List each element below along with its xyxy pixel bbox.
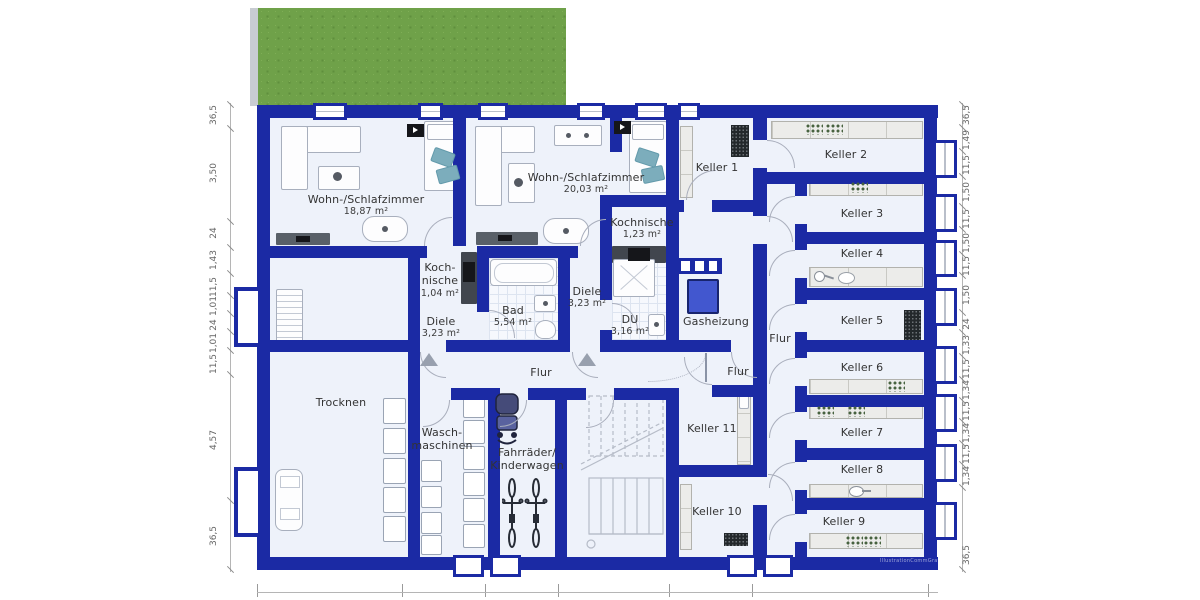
shape [497,432,503,438]
jar-cluster [817,406,834,417]
wall-segment [257,340,408,352]
room-label-wohnzimmer-2: Wohn-/Schlafzimmer 20,03 m² [528,171,645,196]
room-label-waschmaschinen: Wasch- maschinen [411,426,472,453]
shape: Kinderwagen [490,459,564,472]
washing-machine [421,535,442,555]
table-center [563,228,569,234]
window-top-3 [478,103,508,120]
shape [498,440,516,444]
room-label-keller-7: Keller 7 [841,426,884,439]
washing-machine [463,524,485,548]
shape [511,432,517,438]
wall-segment [477,246,489,312]
gas-boiler [687,279,719,314]
wall-segment [807,232,925,244]
room-label-flur-klein: Flur [727,365,748,378]
dimension-label: 11,5 [209,346,219,382]
shape [509,529,515,547]
shelf [680,484,692,550]
chair [514,178,523,187]
room-label-du: DU 3,16 m² [611,313,649,338]
shape [509,479,515,497]
shape [589,478,663,534]
meter-box [709,261,717,271]
window-right-k5 [933,288,957,326]
shape [581,428,663,470]
tv-triangle-icon [620,124,625,130]
room-label-keller-2: Keller 2 [825,148,868,161]
wall-segment [795,278,807,304]
dimension-line-bottom [257,592,938,593]
wall-segment [807,288,925,300]
jar-cluster [806,124,823,135]
wall-segment [666,465,753,477]
shape: 5,54 m² [494,317,532,329]
shelf [771,121,923,139]
window-top-6 [678,103,700,120]
bicycle-icon [502,477,550,551]
washing-machine [383,398,406,424]
washing-machine [463,498,485,522]
shape: 3,23 m² [422,328,460,340]
room-label-diele-2: Diele 3,23 m² [568,285,606,310]
wall-segment [795,386,807,412]
jar-cluster [851,182,868,193]
shape: 20,03 m² [528,184,645,196]
dimension-tick [752,584,753,597]
room-label-trocknen: Trocknen [316,396,366,409]
shape: 1,04 m² [421,288,459,300]
dimension-tick [402,584,403,597]
wall-segment [795,332,807,340]
table-center [382,226,388,232]
jar-cluster [888,381,905,392]
washing-machine [383,516,406,542]
cooktop [628,248,650,261]
shape [502,500,505,503]
window-right-k7 [933,394,957,432]
washing-machine [421,512,442,534]
watermark: IllustrationCommGrafik [880,558,945,564]
pegboard [724,533,748,546]
window-top-5 [635,103,667,120]
racket-handle [862,490,871,492]
shape: 1,23 m² [610,229,673,241]
shape: 3,16 m² [611,326,649,338]
shape [587,540,595,548]
racket-icon [849,486,864,497]
room-label-keller-4: Keller 4 [841,247,884,260]
window-top-2 [418,103,443,120]
sink-drain [543,301,548,306]
wall-segment [610,195,668,207]
shape: nische [421,274,459,287]
shape: Bad [494,304,532,317]
bay-window-left-1 [234,287,262,347]
room-label-kochnische-1: Koch- nische 1,04 m² [421,261,459,299]
room-label-keller-1: Keller 1 [696,161,739,174]
window-right-k4 [933,240,957,277]
toilet [535,320,556,339]
knob [584,133,589,138]
shape [526,500,529,503]
dresser [554,125,602,146]
entrance-arrow-1 [420,353,438,366]
shape: 3,23 m² [568,298,606,310]
wall-segment [408,246,420,557]
room-label-diele-1: Diele 3,23 m² [422,315,460,340]
wall-segment [753,505,767,557]
cabinet-inner [280,508,300,520]
room-label-flur-rechts: Flur [769,332,790,345]
shelf [276,289,303,344]
shape: maschinen [411,439,472,452]
dimension-label: 3,50 [209,155,219,191]
shape [533,479,539,497]
dimension-label: 36,5 [209,518,219,554]
wall-segment [753,168,767,216]
room-label-keller-8: Keller 8 [841,463,884,476]
room-label-keller-6: Keller 6 [841,361,884,374]
shape: Koch- [421,261,459,274]
shape: Wasch- [411,426,472,439]
wall-segment [795,490,807,514]
shape: Kochnische [610,216,673,229]
room-label-wohnzimmer-1: Wohn-/Schlafzimmer 18,87 m² [308,193,425,218]
bathtub-inner [494,263,554,283]
room-label-keller-5: Keller 5 [841,314,884,327]
stereo [498,235,512,241]
wall-segment [753,105,767,140]
wall-segment [712,385,757,397]
wall-segment [795,352,807,358]
pegboard [904,310,921,344]
window-right-k8 [933,444,957,482]
shape: Wohn-/Schlafzimmer [528,171,645,184]
room-label-flur-mitte: Flur [530,366,551,379]
knob [566,133,571,138]
shape: Diele [568,285,606,298]
wall-segment [795,172,807,196]
sofa [281,126,308,190]
stereo [296,236,310,242]
shape: DU [611,313,649,326]
dimension-label: 1,34 [962,458,972,494]
shape [581,422,663,464]
bed-headboard [632,124,664,140]
pegboard [731,125,749,157]
wall-segment [614,388,666,400]
dimension-tick [257,584,258,597]
wall-segment [257,557,938,570]
door-leaf [705,353,707,382]
wall-segment [257,246,427,258]
shape: Diele [422,315,460,328]
window-right-k9 [933,502,957,540]
meter-box [695,261,704,271]
shape [509,514,515,523]
room-label-keller-10: Keller 10 [692,505,742,518]
dimension-tick [558,584,559,597]
garden-border-strip [250,8,258,106]
jar-cluster [864,536,881,547]
dimension-tick [485,584,486,597]
shape [533,514,539,523]
entrance-arrow-2 [578,353,596,366]
light-well-3 [727,555,757,577]
dimension-tick [669,584,670,597]
wall-segment [666,200,684,212]
shape: Wohn-/Schlafzimmer [308,193,425,206]
cabinet-inner [280,476,300,488]
shelf [809,267,923,287]
washing-machine [421,486,442,508]
shape [502,479,547,547]
jar-cluster [826,124,843,135]
plate-icon [838,272,855,284]
jar-cluster [848,406,865,417]
wall-segment [600,340,731,352]
wall-segment [807,448,925,460]
grass-area [258,8,566,106]
dimension-label: 36,5 [209,97,219,133]
shape: Fahrräder/ [490,446,564,459]
shape [520,500,523,503]
washing-machine [383,428,406,454]
wall-segment [528,388,555,400]
shape [533,529,539,547]
wall-segment [567,388,586,400]
wall-segment [795,224,807,250]
wall-segment [753,244,767,340]
light-well-2 [490,555,521,577]
window-top-4 [577,103,605,120]
dimension-label: 4,57 [209,422,219,458]
tv-triangle-icon [413,127,418,133]
room-label-gasheizung: Gasheizung [683,315,749,328]
dimension-label: 36,5 [962,537,972,573]
wall-segment [807,498,925,510]
wall-segment [795,440,807,462]
light-well-4 [763,555,793,577]
cooktop [463,262,475,282]
wall-segment [446,340,570,352]
window-right-k3 [933,194,957,232]
washing-machine [383,458,406,484]
washing-machine [383,487,406,513]
dimension-tick [928,584,929,597]
washing-machine [421,460,442,482]
room-label-kochnische-2: Kochnische 1,23 m² [610,216,673,241]
stairs [569,392,667,556]
shape [544,500,547,503]
shape: 18,87 m² [308,206,425,218]
wall-segment [712,200,753,212]
washing-machine [463,472,485,496]
shelf [809,379,923,394]
room-label-keller-11: Keller 11 [687,422,737,435]
meter-box [681,261,690,271]
window-right-k2 [933,140,957,178]
room-label-bad: Bad 5,54 m² [494,304,532,329]
wall-segment [795,542,807,557]
room-label-keller-9: Keller 9 [823,515,866,528]
sofa [475,126,502,206]
wall-segment [795,340,924,352]
room-label-keller-3: Keller 3 [841,207,884,220]
bay-window-left-2 [234,467,262,537]
light-well-1 [453,555,484,577]
window-top-1 [313,103,347,120]
floor-plan: Wohn-/Schlafzimmer 18,87 m² Wohn-/Schlaf… [0,0,1200,600]
jar-cluster [846,536,863,547]
sink-drain [654,322,659,327]
wine-glass-icon [814,271,825,282]
window-right-k6 [933,346,957,384]
chair [333,172,342,181]
wall-segment [767,172,925,184]
room-label-fahrraeder: Fahrräder/ Kinderwagen [490,446,564,473]
